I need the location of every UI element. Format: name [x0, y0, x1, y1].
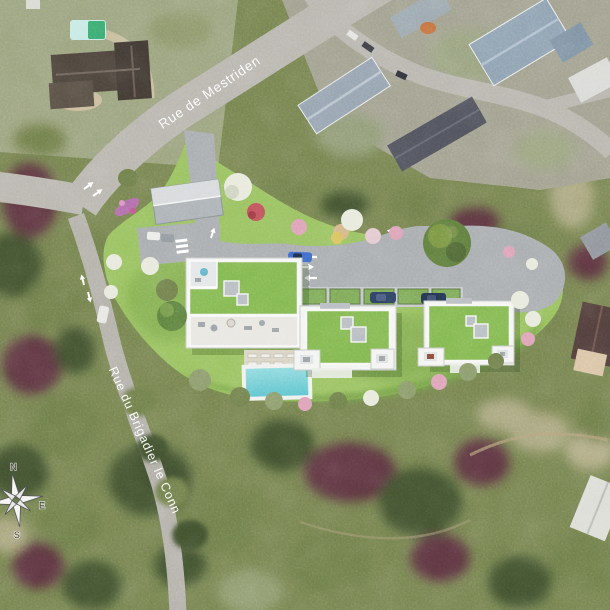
- grain-overlay: [0, 0, 610, 610]
- site-plan-rendering: Rue de Mestriden Rue du Brigadier le Con…: [0, 0, 610, 610]
- compass-east-label: E: [39, 500, 45, 510]
- aerial-map: Rue de Mestriden Rue du Brigadier le Con…: [0, 0, 610, 610]
- compass-north-label: N: [10, 462, 16, 472]
- compass-south-label: S: [14, 530, 20, 540]
